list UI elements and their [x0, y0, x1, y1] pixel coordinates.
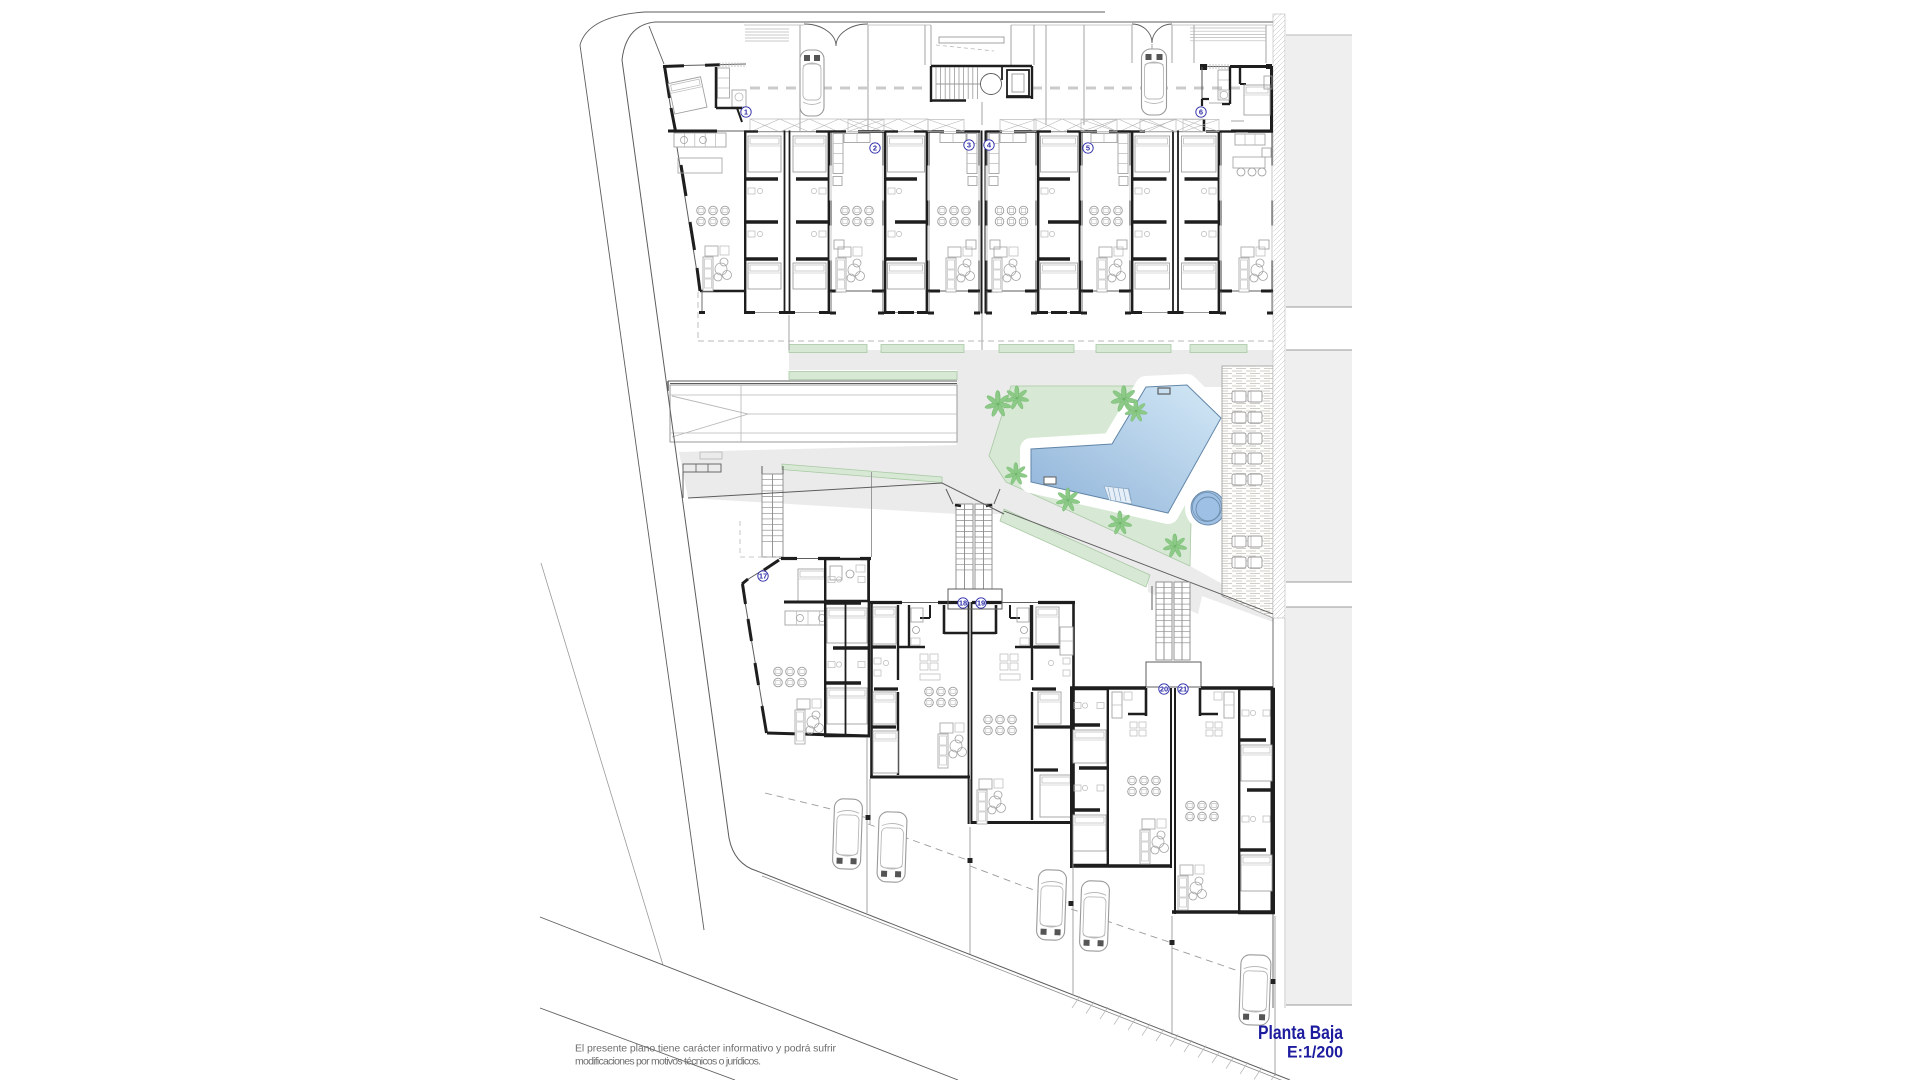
svg-text:17: 17 — [759, 572, 767, 581]
svg-text:3: 3 — [967, 141, 971, 150]
svg-text:18: 18 — [959, 599, 967, 608]
svg-text:El presente plano tiene caráct: El presente plano tiene carácter informa… — [575, 1043, 837, 1055]
svg-text:1: 1 — [744, 108, 748, 117]
svg-text:5: 5 — [1086, 144, 1090, 153]
svg-text:21: 21 — [1179, 685, 1187, 694]
svg-text:2: 2 — [873, 144, 877, 153]
svg-text:19: 19 — [977, 599, 985, 608]
svg-text:Planta Baja: Planta Baja — [1258, 1023, 1343, 1044]
svg-text:modificaciones por motivos téc: modificaciones por motivos técnicos o ju… — [575, 1056, 761, 1068]
svg-text:6: 6 — [1199, 108, 1203, 117]
svg-text:20: 20 — [1160, 685, 1168, 694]
svg-text:E:1/200: E:1/200 — [1287, 1043, 1343, 1062]
